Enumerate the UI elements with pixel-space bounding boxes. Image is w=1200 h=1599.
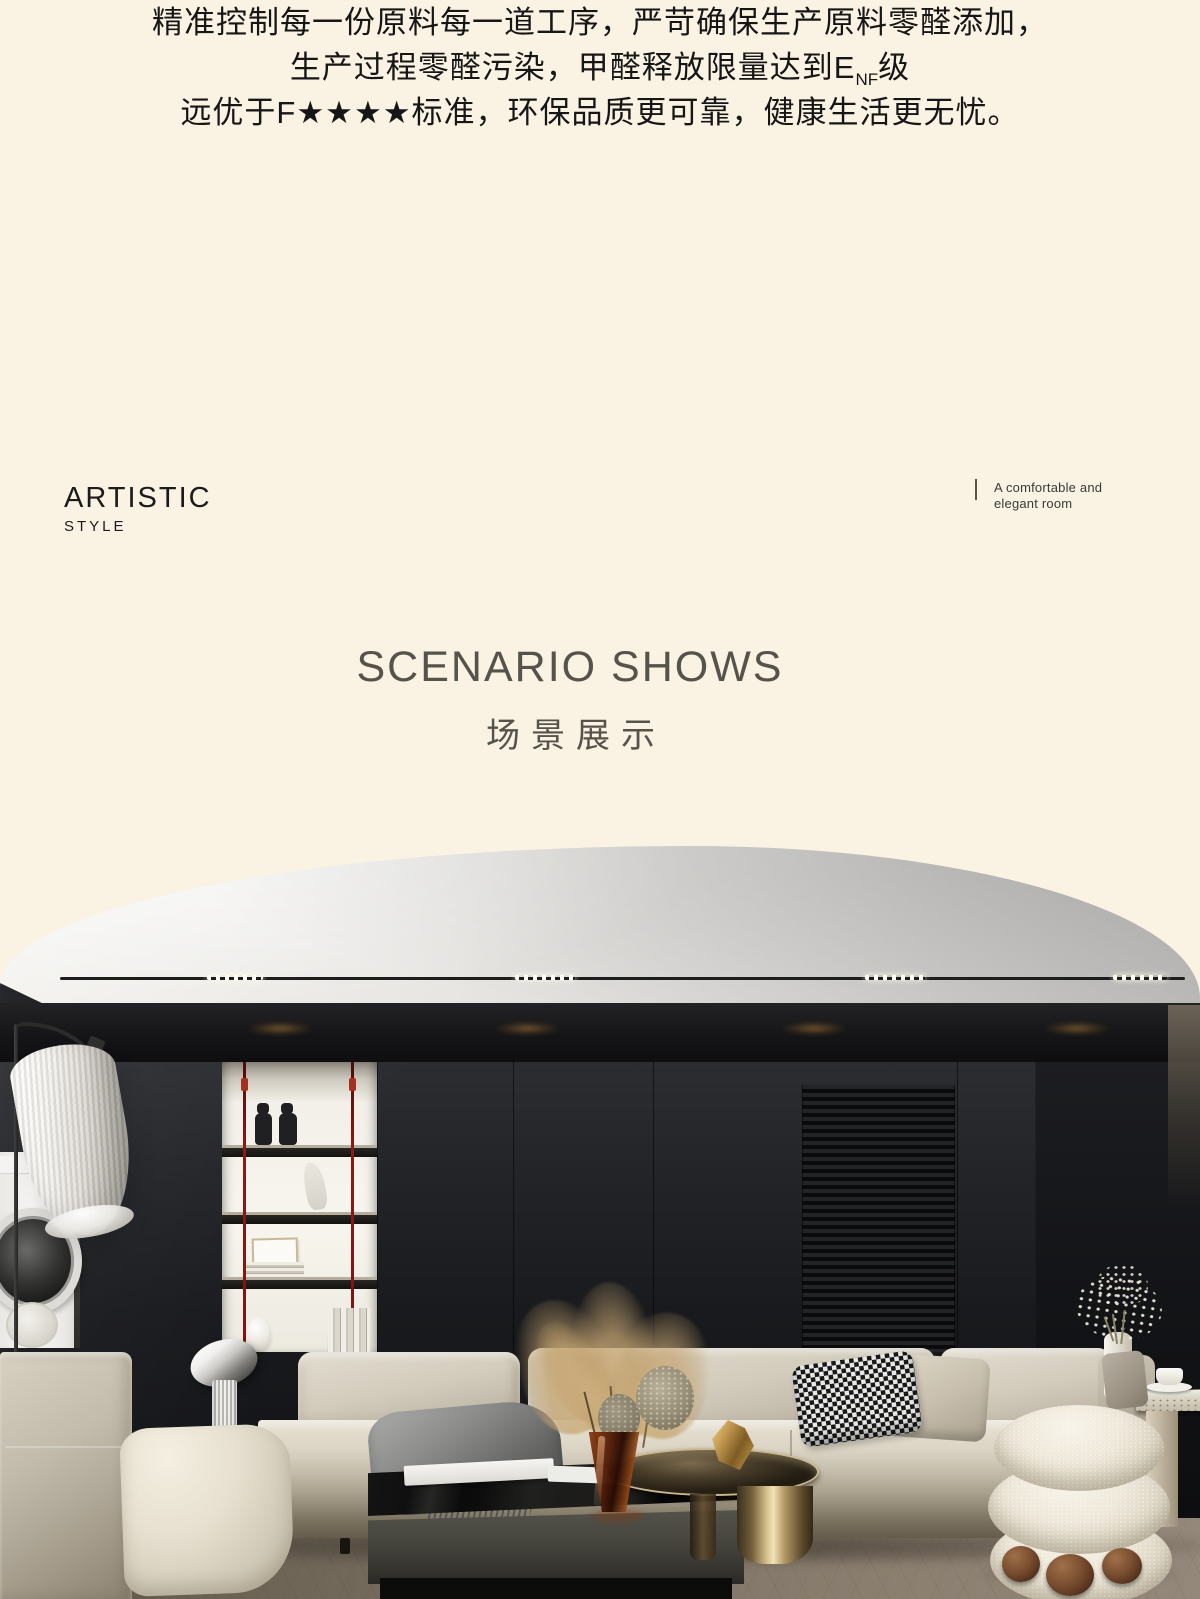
room-caption: A comfortable and elegant room — [994, 480, 1164, 511]
scene-photo — [0, 846, 1200, 1599]
pouf-wood-ball-foot — [1102, 1548, 1142, 1584]
track-light-glow — [207, 975, 263, 980]
babys-breath-flowers — [1096, 1264, 1148, 1308]
niche-red-cable — [243, 1062, 246, 1352]
bronze-side-table-leg — [737, 1486, 813, 1564]
caption-divider-bar — [975, 479, 977, 500]
book-stack — [246, 1262, 304, 1277]
wall-panel-seam — [377, 1062, 378, 1352]
louvered-wall-panel — [802, 1085, 955, 1352]
room-caption-line-1: A comfortable and — [994, 480, 1164, 496]
intro-line-2: 生产过程零醛污染，甲醛释放限量达到ENF级 — [0, 45, 1200, 90]
style-title: ARTISTIC — [64, 482, 212, 515]
sofa-leg — [340, 1538, 350, 1554]
pillow-houndstooth — [791, 1350, 923, 1448]
soffit-downlight-glow — [782, 1022, 846, 1035]
intro-line-3: 远优于F★★★★标准，环保品质更可靠，健康生活更无忧。 — [0, 90, 1200, 135]
soffit-downlight-glow — [248, 1022, 312, 1035]
boucle-pouf-ring — [994, 1405, 1164, 1491]
wall-panel-seam — [653, 1062, 654, 1352]
intro-paragraph: 精准控制每一份原料每一道工序，严苛确保生产原料零醛添加， 生产过程零醛污染，甲醛… — [0, 0, 1200, 135]
bearbrick-figurine — [255, 1113, 272, 1145]
dried-seed-pod — [636, 1366, 694, 1430]
intro-line-1: 精准控制每一份原料每一道工序，严苛确保生产原料零醛添加， — [0, 0, 1200, 45]
track-light-glow — [865, 975, 925, 980]
coffee-cup — [1156, 1368, 1183, 1385]
soffit-downlight-glow — [1045, 1022, 1109, 1035]
soffit-downlight-glow — [495, 1022, 559, 1035]
cable-connector — [349, 1078, 356, 1091]
bearbrick-figurine — [279, 1113, 297, 1145]
section-title-cn: 场景展示 — [0, 708, 1152, 757]
track-light-glow — [515, 975, 575, 980]
cable-connector — [241, 1078, 248, 1091]
coffee-table-front — [368, 1510, 744, 1584]
wall-panel-seam — [957, 1062, 958, 1352]
right-wall-edge-light — [1168, 1005, 1200, 1210]
section-title-en: SCENARIO SHOWS — [0, 643, 1140, 692]
track-light-glow — [1113, 975, 1167, 980]
style-label: ARTISTIC STYLE — [64, 482, 212, 535]
style-subtitle: STYLE — [64, 518, 212, 535]
wall-panel-seam — [513, 1062, 514, 1352]
bronze-side-table-leg — [690, 1494, 716, 1560]
pouf-wood-ball-foot — [1046, 1554, 1094, 1596]
page-canvas: 精准控制每一份原料每一道工序，严苛确保生产原料零醛添加， 生产过程零醛污染，甲醛… — [0, 0, 1200, 1599]
sofa-chaise-seat — [119, 1423, 295, 1597]
coffee-table-plinth — [380, 1578, 732, 1599]
enf-subscript: NF — [856, 70, 879, 89]
pouf-wood-ball-foot — [1002, 1546, 1040, 1582]
vertical-books — [328, 1308, 370, 1352]
room-caption-line-2: elegant room — [994, 496, 1164, 512]
pillow-gray-velvet — [1101, 1350, 1149, 1410]
ceiling-soffit — [0, 1003, 1200, 1063]
sofa-left-arm — [0, 1352, 132, 1599]
